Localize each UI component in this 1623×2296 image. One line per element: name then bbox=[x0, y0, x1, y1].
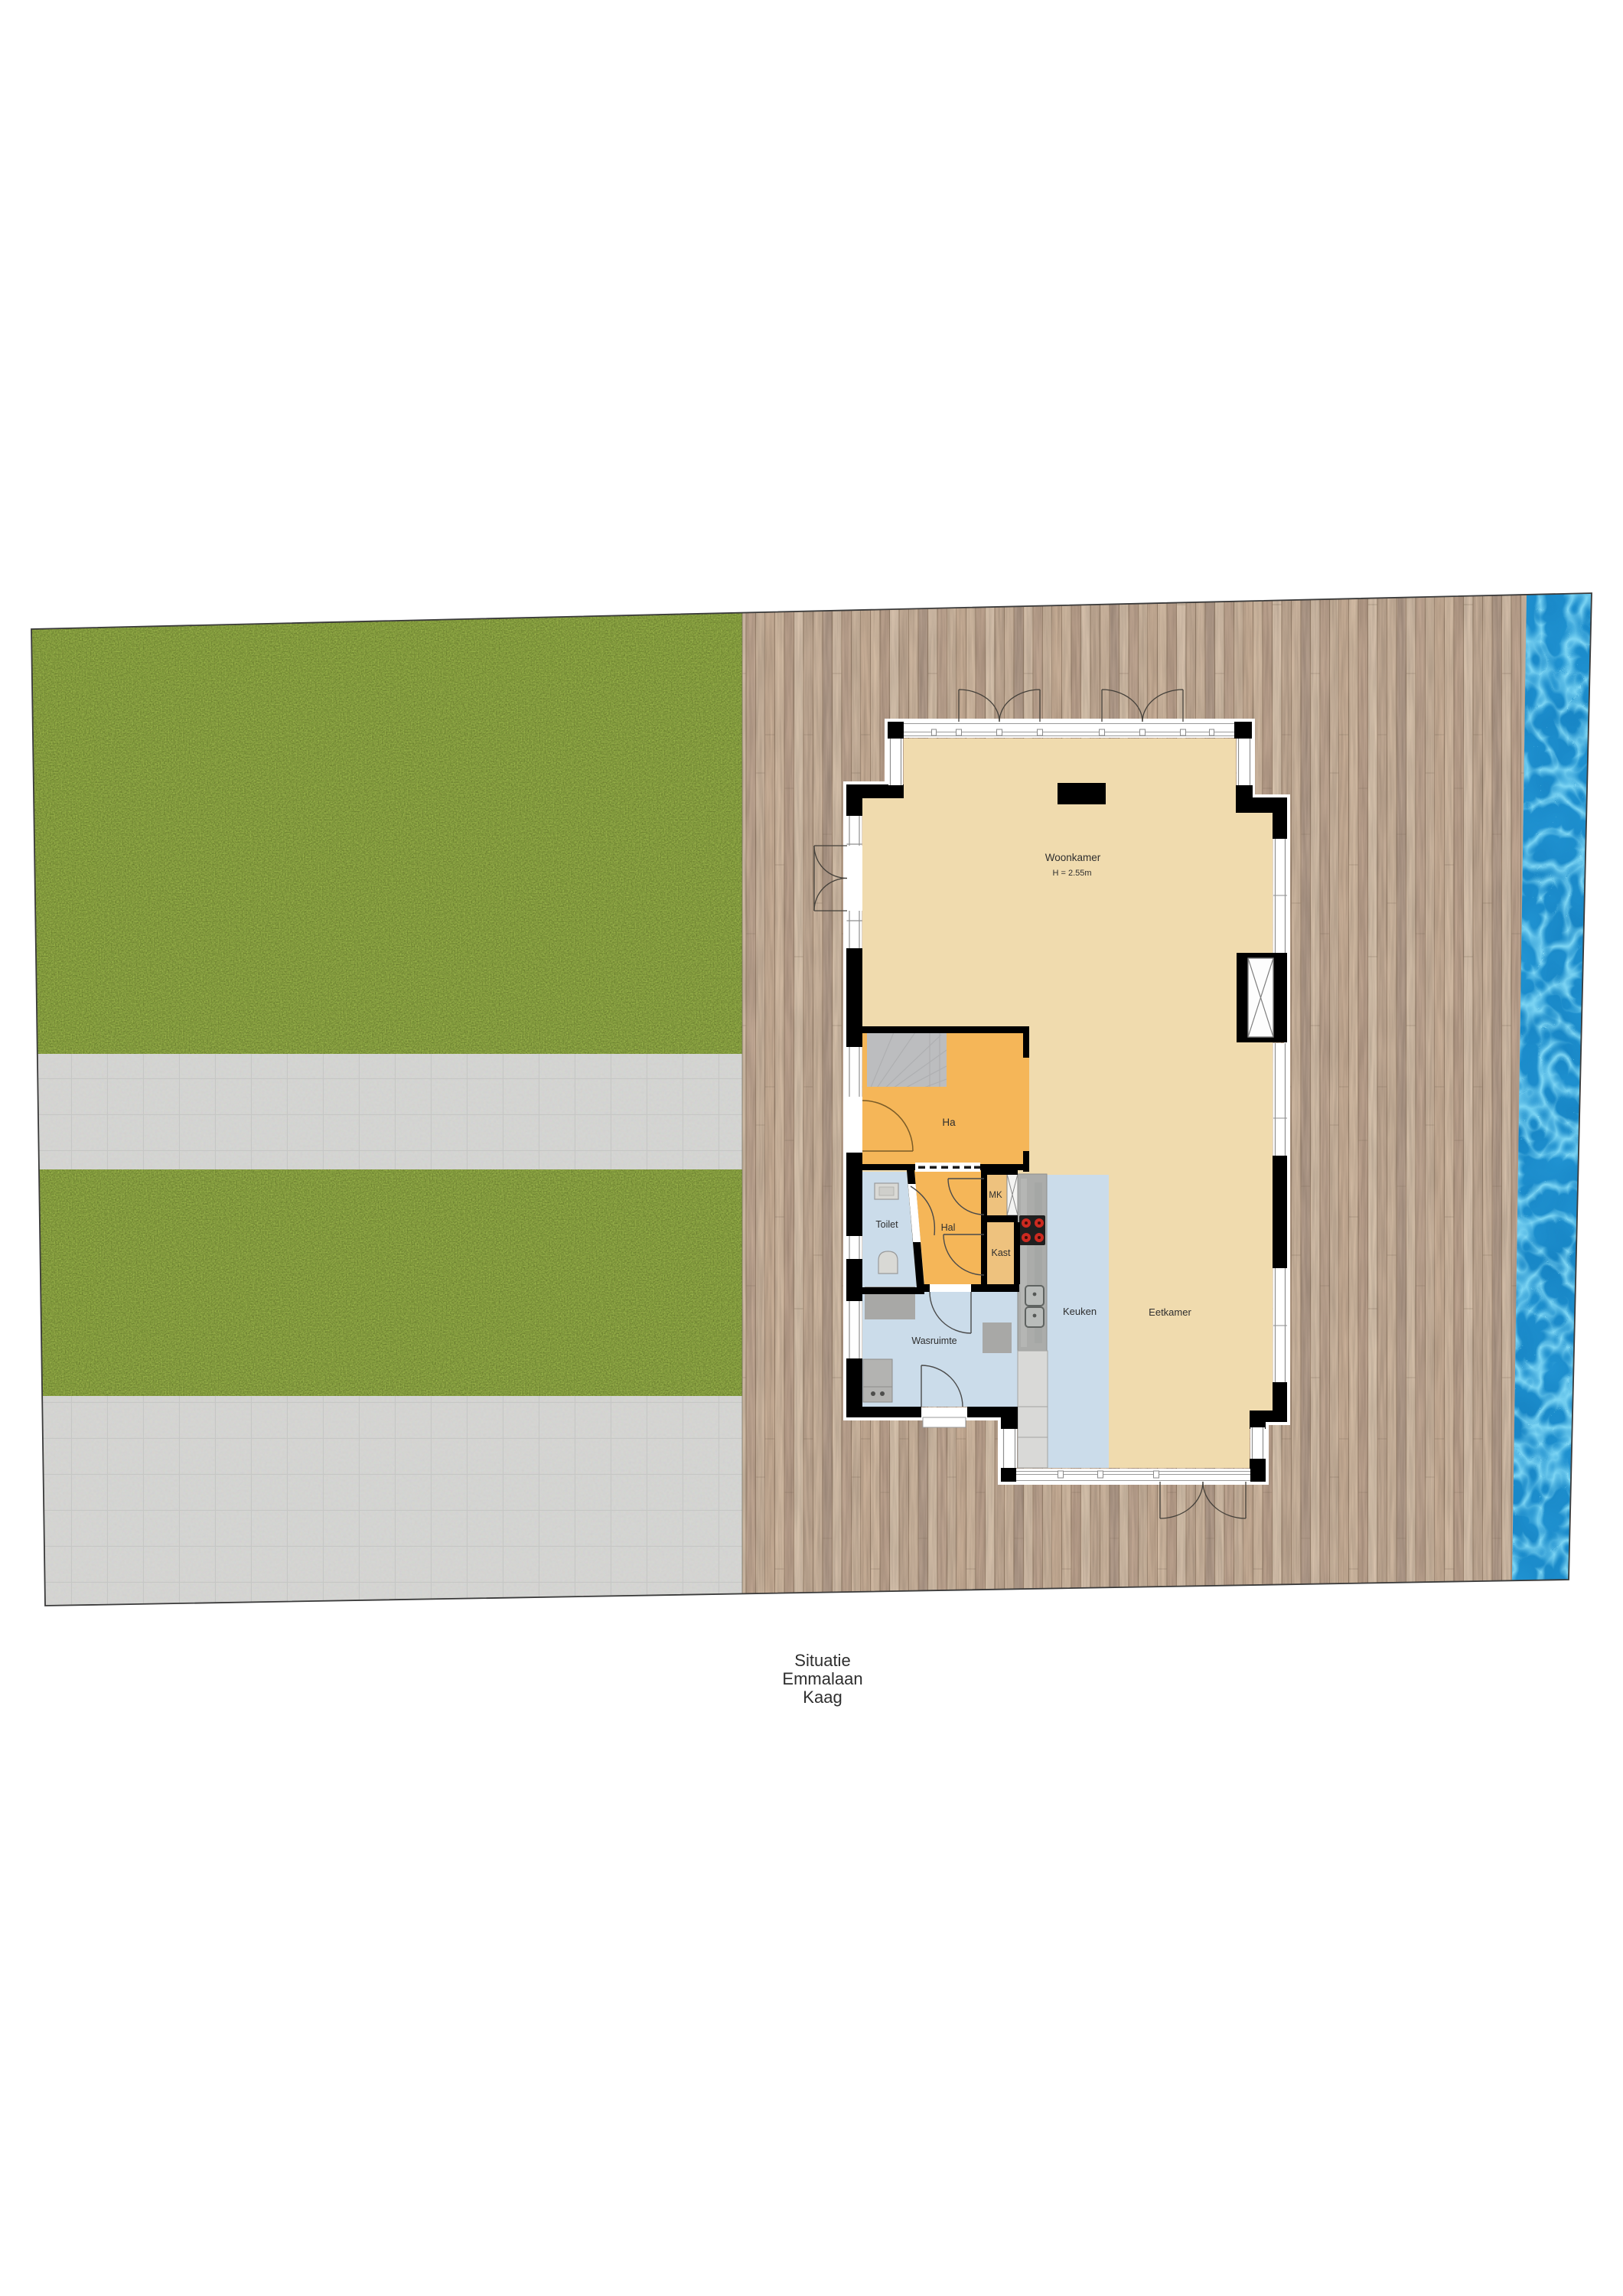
svg-text:Woonkamer: Woonkamer bbox=[1045, 852, 1101, 863]
svg-text:MK: MK bbox=[989, 1191, 1002, 1200]
svg-text:Eetkamer: Eetkamer bbox=[1149, 1306, 1191, 1318]
svg-text:Kaag: Kaag bbox=[803, 1688, 842, 1707]
svg-text:H = 2.55m: H = 2.55m bbox=[1052, 869, 1091, 878]
svg-text:Hal: Hal bbox=[941, 1222, 956, 1233]
svg-text:Situatie: Situatie bbox=[794, 1651, 850, 1670]
svg-text:Toilet: Toilet bbox=[875, 1219, 898, 1230]
svg-text:Kast: Kast bbox=[991, 1247, 1011, 1258]
svg-text:Ha: Ha bbox=[942, 1117, 956, 1128]
svg-text:Wasruimte: Wasruimte bbox=[911, 1336, 957, 1346]
svg-text:Keuken: Keuken bbox=[1063, 1306, 1097, 1317]
svg-text:Emmalaan: Emmalaan bbox=[782, 1669, 862, 1688]
